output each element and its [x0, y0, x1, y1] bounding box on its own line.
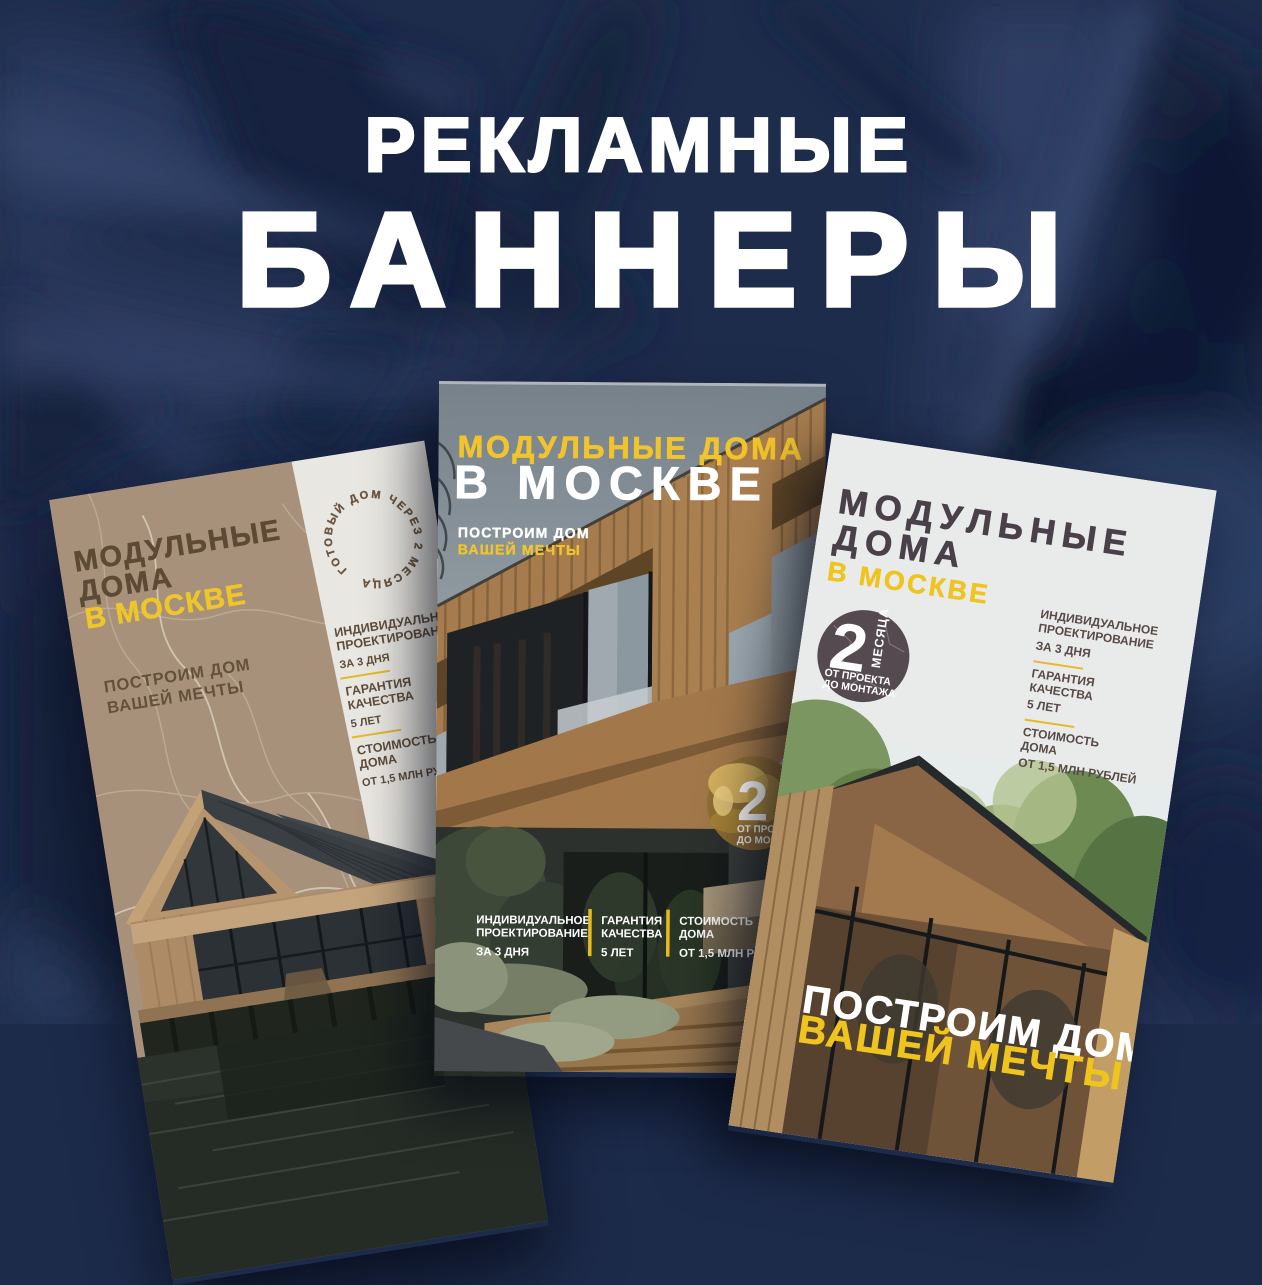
- svg-text:ВАШЕЙ МЕЧТЫ: ВАШЕЙ МЕЧТЫ: [458, 540, 581, 558]
- svg-text:СТОИМОСТЬ: СТОИМОСТЬ: [679, 916, 753, 929]
- svg-text:ПРОЕКТИРОВАНИЕ: ПРОЕКТИРОВАНИЕ: [476, 927, 588, 940]
- svg-text:ГАРАНТИЯ: ГАРАНТИЯ: [601, 915, 662, 927]
- svg-text:5 ЛЕТ: 5 ЛЕТ: [601, 947, 633, 959]
- svg-text:КАЧЕСТВА: КАЧЕСТВА: [601, 928, 662, 940]
- svg-text:ЗА 3 ДНЯ: ЗА 3 ДНЯ: [476, 946, 529, 958]
- svg-text:ПОСТРОИМ ДОМ: ПОСТРОИМ ДОМ: [458, 524, 590, 541]
- svg-text:ОТ 1,5 МЛН Р: ОТ 1,5 МЛН Р: [679, 948, 755, 961]
- svg-text:ДОМА: ДОМА: [679, 929, 714, 941]
- svg-text:В МОСКВЕ: В МОСКВЕ: [454, 455, 769, 510]
- svg-text:2: 2: [737, 769, 769, 832]
- svg-text:ИНДИВИДУАЛЬНОЕ: ИНДИВИДУАЛЬНОЕ: [476, 914, 590, 927]
